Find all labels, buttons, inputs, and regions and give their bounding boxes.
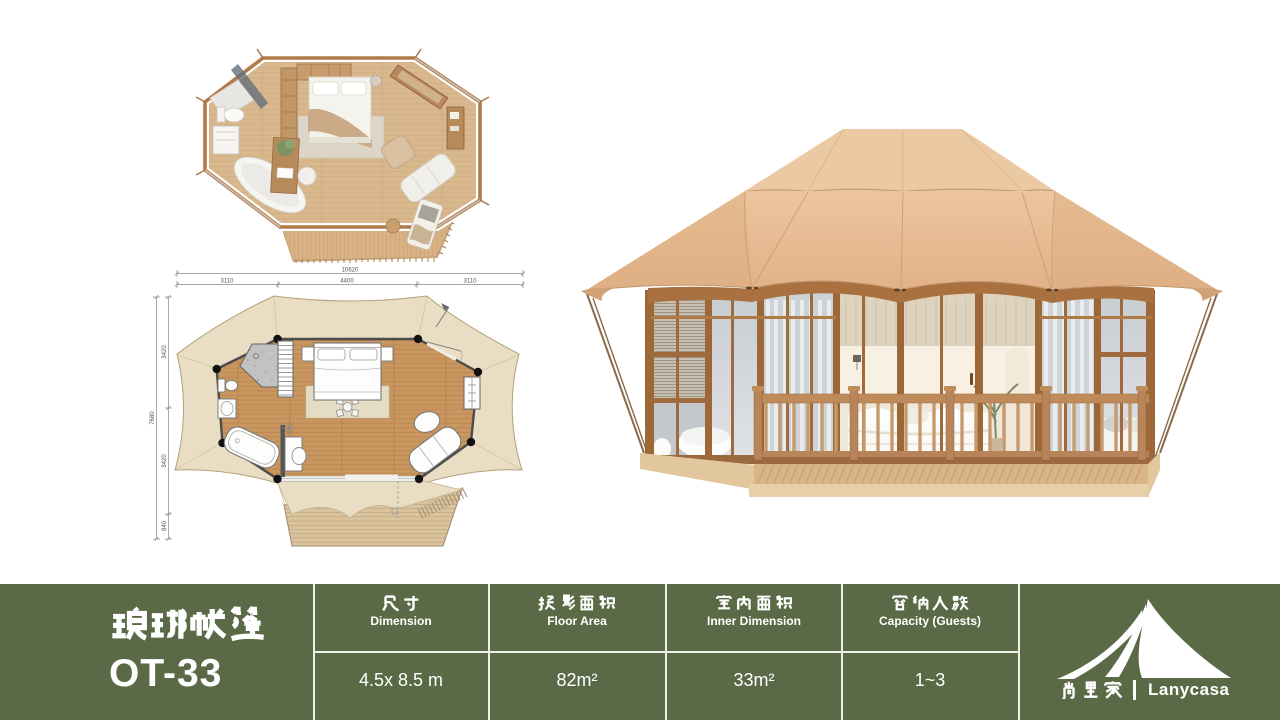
svg-text:10620: 10620	[342, 268, 359, 274]
svg-text:840: 840	[162, 520, 168, 531]
svg-text:3110: 3110	[221, 279, 235, 285]
svg-text:3420: 3420	[162, 345, 168, 359]
svg-text:3110: 3110	[464, 279, 478, 285]
svg-text:3420: 3420	[162, 454, 168, 468]
svg-text:7680: 7680	[150, 411, 156, 425]
svg-text:4400: 4400	[340, 279, 354, 285]
